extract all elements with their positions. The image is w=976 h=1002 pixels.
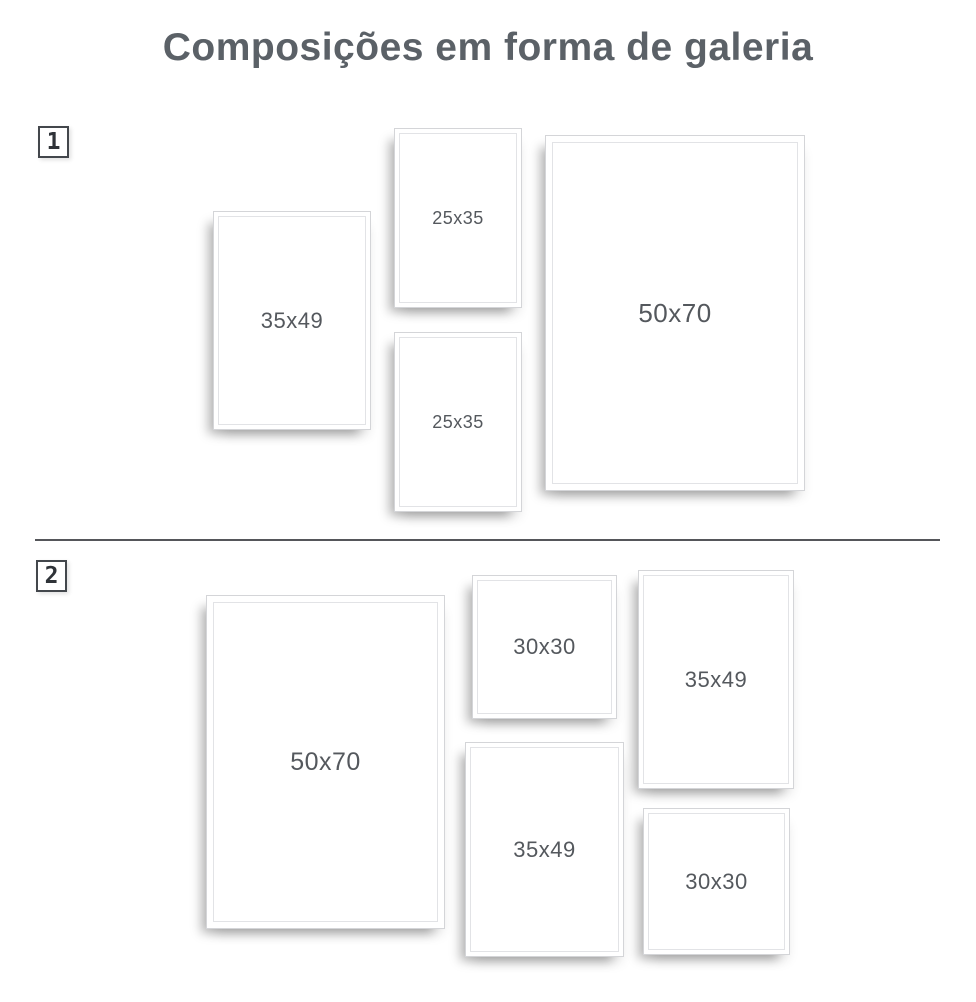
picture-frame-30x30: 30x30 — [472, 575, 617, 719]
picture-frame-30x30: 30x30 — [643, 808, 790, 955]
picture-frame-35x49: 35x49 — [213, 211, 371, 430]
composition-badge-2: 2 — [36, 560, 67, 592]
frame-size-label: 30x30 — [685, 869, 747, 895]
page-title: Composições em forma de galeria — [0, 26, 976, 70]
picture-frame-25x35: 25x35 — [394, 128, 522, 308]
picture-frame-25x35: 25x35 — [394, 332, 522, 512]
picture-frame-50x70: 50x70 — [545, 135, 805, 491]
frame-size-label: 25x35 — [432, 208, 484, 229]
frame-size-label: 30x30 — [513, 634, 575, 660]
section-divider — [35, 539, 940, 541]
picture-frame-35x49: 35x49 — [465, 742, 624, 957]
picture-frame-50x70: 50x70 — [206, 595, 445, 929]
frame-size-label: 25x35 — [432, 412, 484, 433]
frame-size-label: 50x70 — [290, 748, 361, 777]
composition-badge-1: 1 — [38, 126, 69, 158]
frame-size-label: 50x70 — [638, 298, 711, 329]
frame-size-label: 35x49 — [261, 308, 323, 334]
picture-frame-35x49: 35x49 — [638, 570, 794, 789]
stage: Composições em forma de galeria 135x4925… — [0, 0, 976, 1002]
frame-size-label: 35x49 — [513, 837, 575, 863]
frame-size-label: 35x49 — [685, 667, 747, 693]
